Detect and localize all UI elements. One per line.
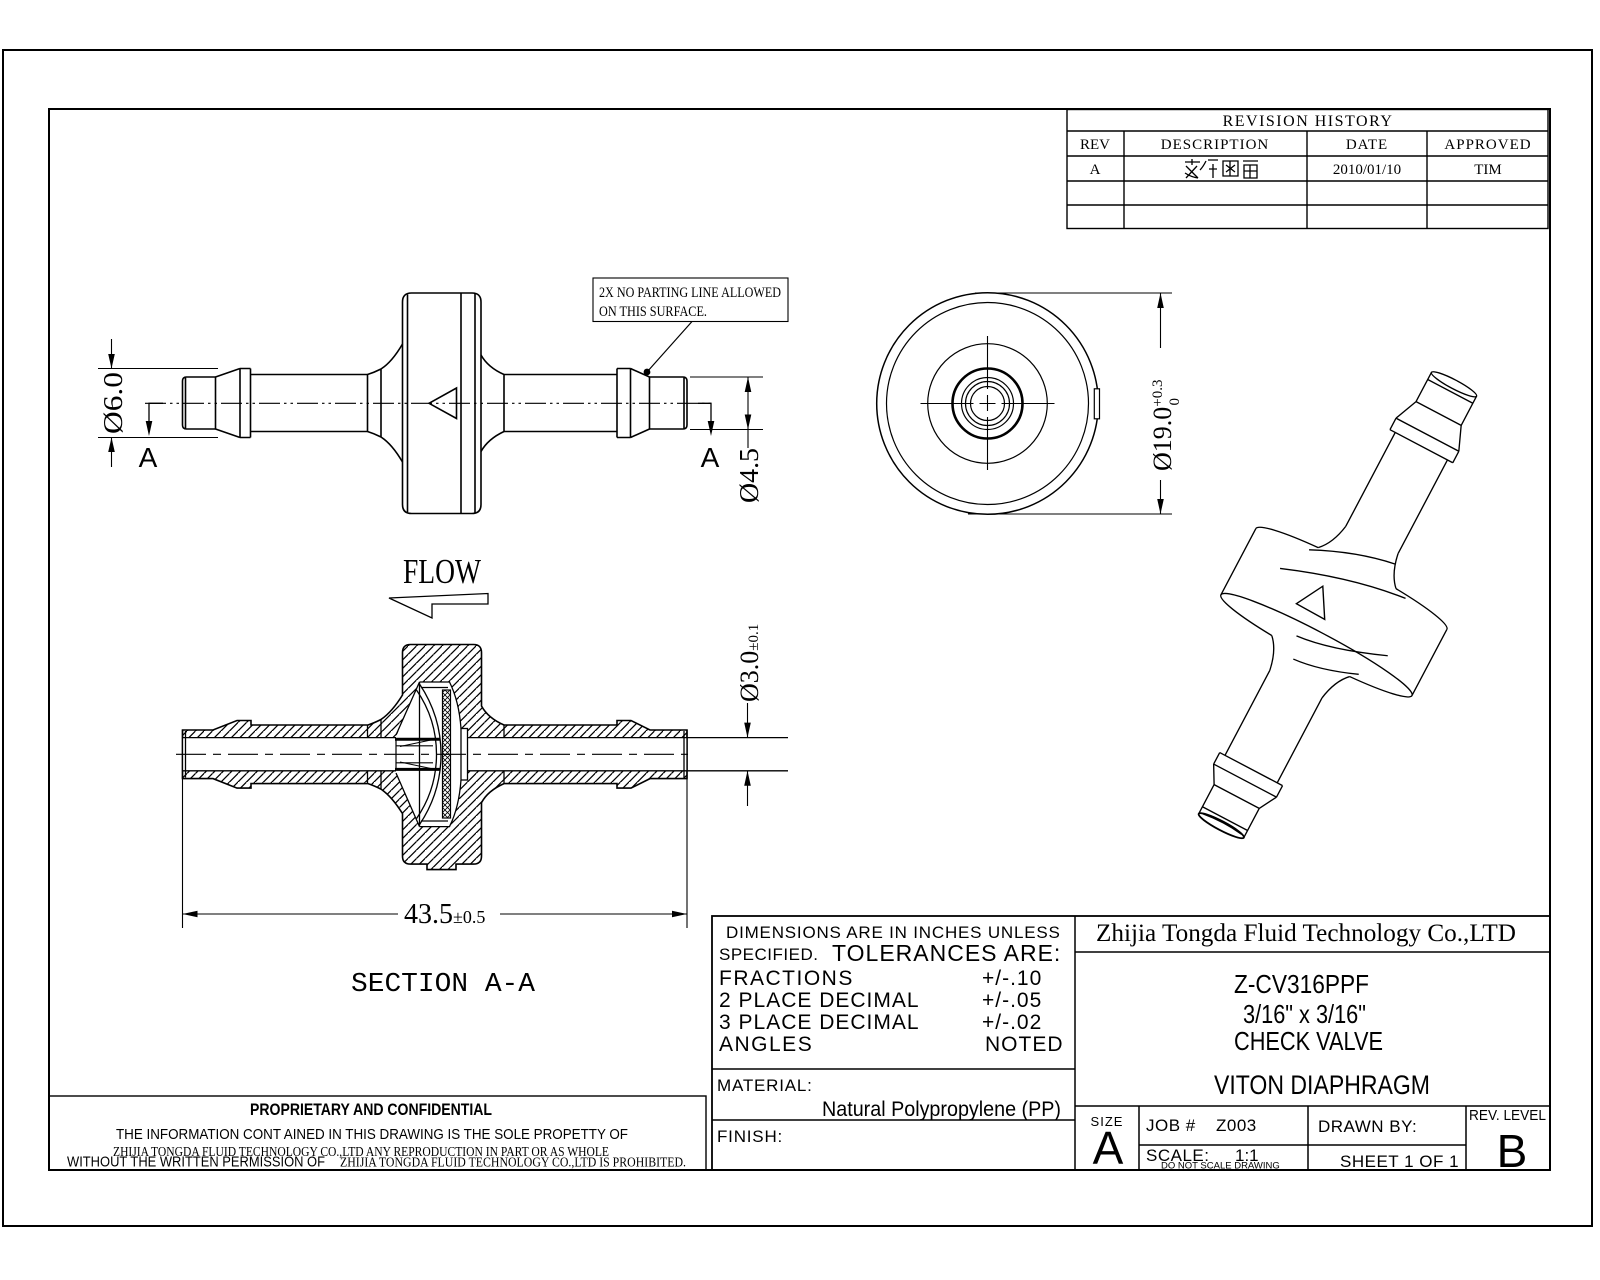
svg-text:B: B [1497,1125,1528,1177]
svg-text:A: A [701,442,720,473]
svg-text:VITON DIAPHRAGM: VITON DIAPHRAGM [1214,1070,1430,1100]
svg-text:CHECK VALVE: CHECK VALVE [1234,1026,1383,1056]
svg-text:A: A [139,442,158,473]
svg-text:PROPRIETARY AND CONFIDENTIAL: PROPRIETARY AND CONFIDENTIAL [250,1100,492,1119]
svg-text:Zhijia Tongda Fluid Technology: Zhijia Tongda Fluid Technology Co.,LTD [1096,920,1516,947]
svg-text:DESCRIPTION: DESCRIPTION [1161,137,1270,153]
svg-text:DO NOT SCALE DRAWING: DO NOT SCALE DRAWING [1161,1161,1280,1172]
svg-text:Natural Polypropylene (PP): Natural Polypropylene (PP) [822,1098,1061,1121]
svg-text:MATERIAL:: MATERIAL: [717,1076,813,1095]
svg-text:SPECIFIED.: SPECIFIED. [719,945,818,964]
svg-text:ZHIJIA TONGDA FLUID TECHNOLOGY: ZHIJIA TONGDA FLUID TECHNOLOGY CO.,LTD I… [340,1156,686,1171]
svg-text:FINISH:: FINISH: [717,1127,783,1146]
svg-text:REVISION HISTORY: REVISION HISTORY [1223,113,1394,130]
svg-text:A: A [1093,1122,1124,1174]
svg-text:2X NO PARTING LINE ALLOWED: 2X NO PARTING LINE ALLOWED [599,285,781,301]
svg-text:TOLERANCES ARE:: TOLERANCES ARE: [832,940,1061,966]
svg-text:+/-.02: +/-.02 [982,1011,1042,1034]
svg-text:SHEET 1 OF 1: SHEET 1 OF 1 [1340,1152,1459,1171]
svg-text:3 PLACE DECIMAL: 3 PLACE DECIMAL [719,1011,920,1034]
svg-text:2010/01/10: 2010/01/10 [1333,162,1401,178]
svg-text:SECTION A-A: SECTION A-A [351,970,536,1000]
svg-text:THE INFORMATION CONT AINED IN: THE INFORMATION CONT AINED IN THIS DRAWI… [116,1126,628,1143]
svg-text:+/-.10: +/-.10 [982,967,1042,990]
svg-text:REV. LEVEL: REV. LEVEL [1469,1107,1546,1124]
svg-text:FLOW: FLOW [403,552,481,591]
svg-text:ANGLES: ANGLES [719,1033,813,1056]
svg-text:Ø4.5: Ø4.5 [734,448,764,503]
svg-text:JOB #: JOB # [1146,1116,1196,1135]
svg-text:Ø6.0: Ø6.0 [98,372,128,434]
svg-text:3/16" x 3/16": 3/16" x 3/16" [1243,999,1366,1029]
svg-text:A: A [1090,162,1101,178]
svg-text:ON THIS SURFACE.: ON THIS SURFACE. [599,304,707,320]
svg-text:FRACTIONS: FRACTIONS [719,967,854,990]
svg-text:Z003: Z003 [1216,1116,1257,1135]
svg-text:WITHOUT THE WRITTEN PERMISSION: WITHOUT THE WRITTEN PERMISSION OF [67,1154,325,1171]
svg-text:2 PLACE DECIMAL: 2 PLACE DECIMAL [719,989,920,1012]
svg-text:DRAWN BY:: DRAWN BY: [1318,1117,1417,1136]
svg-text:TIM: TIM [1474,162,1502,178]
svg-text:DATE: DATE [1346,137,1388,153]
svg-text:APPROVED: APPROVED [1444,137,1531,153]
svg-text:+/-.05: +/-.05 [982,989,1042,1012]
svg-text:Z-CV316PPF: Z-CV316PPF [1234,969,1369,999]
svg-text:NOTED: NOTED [985,1033,1064,1056]
svg-text:REV: REV [1080,137,1110,153]
